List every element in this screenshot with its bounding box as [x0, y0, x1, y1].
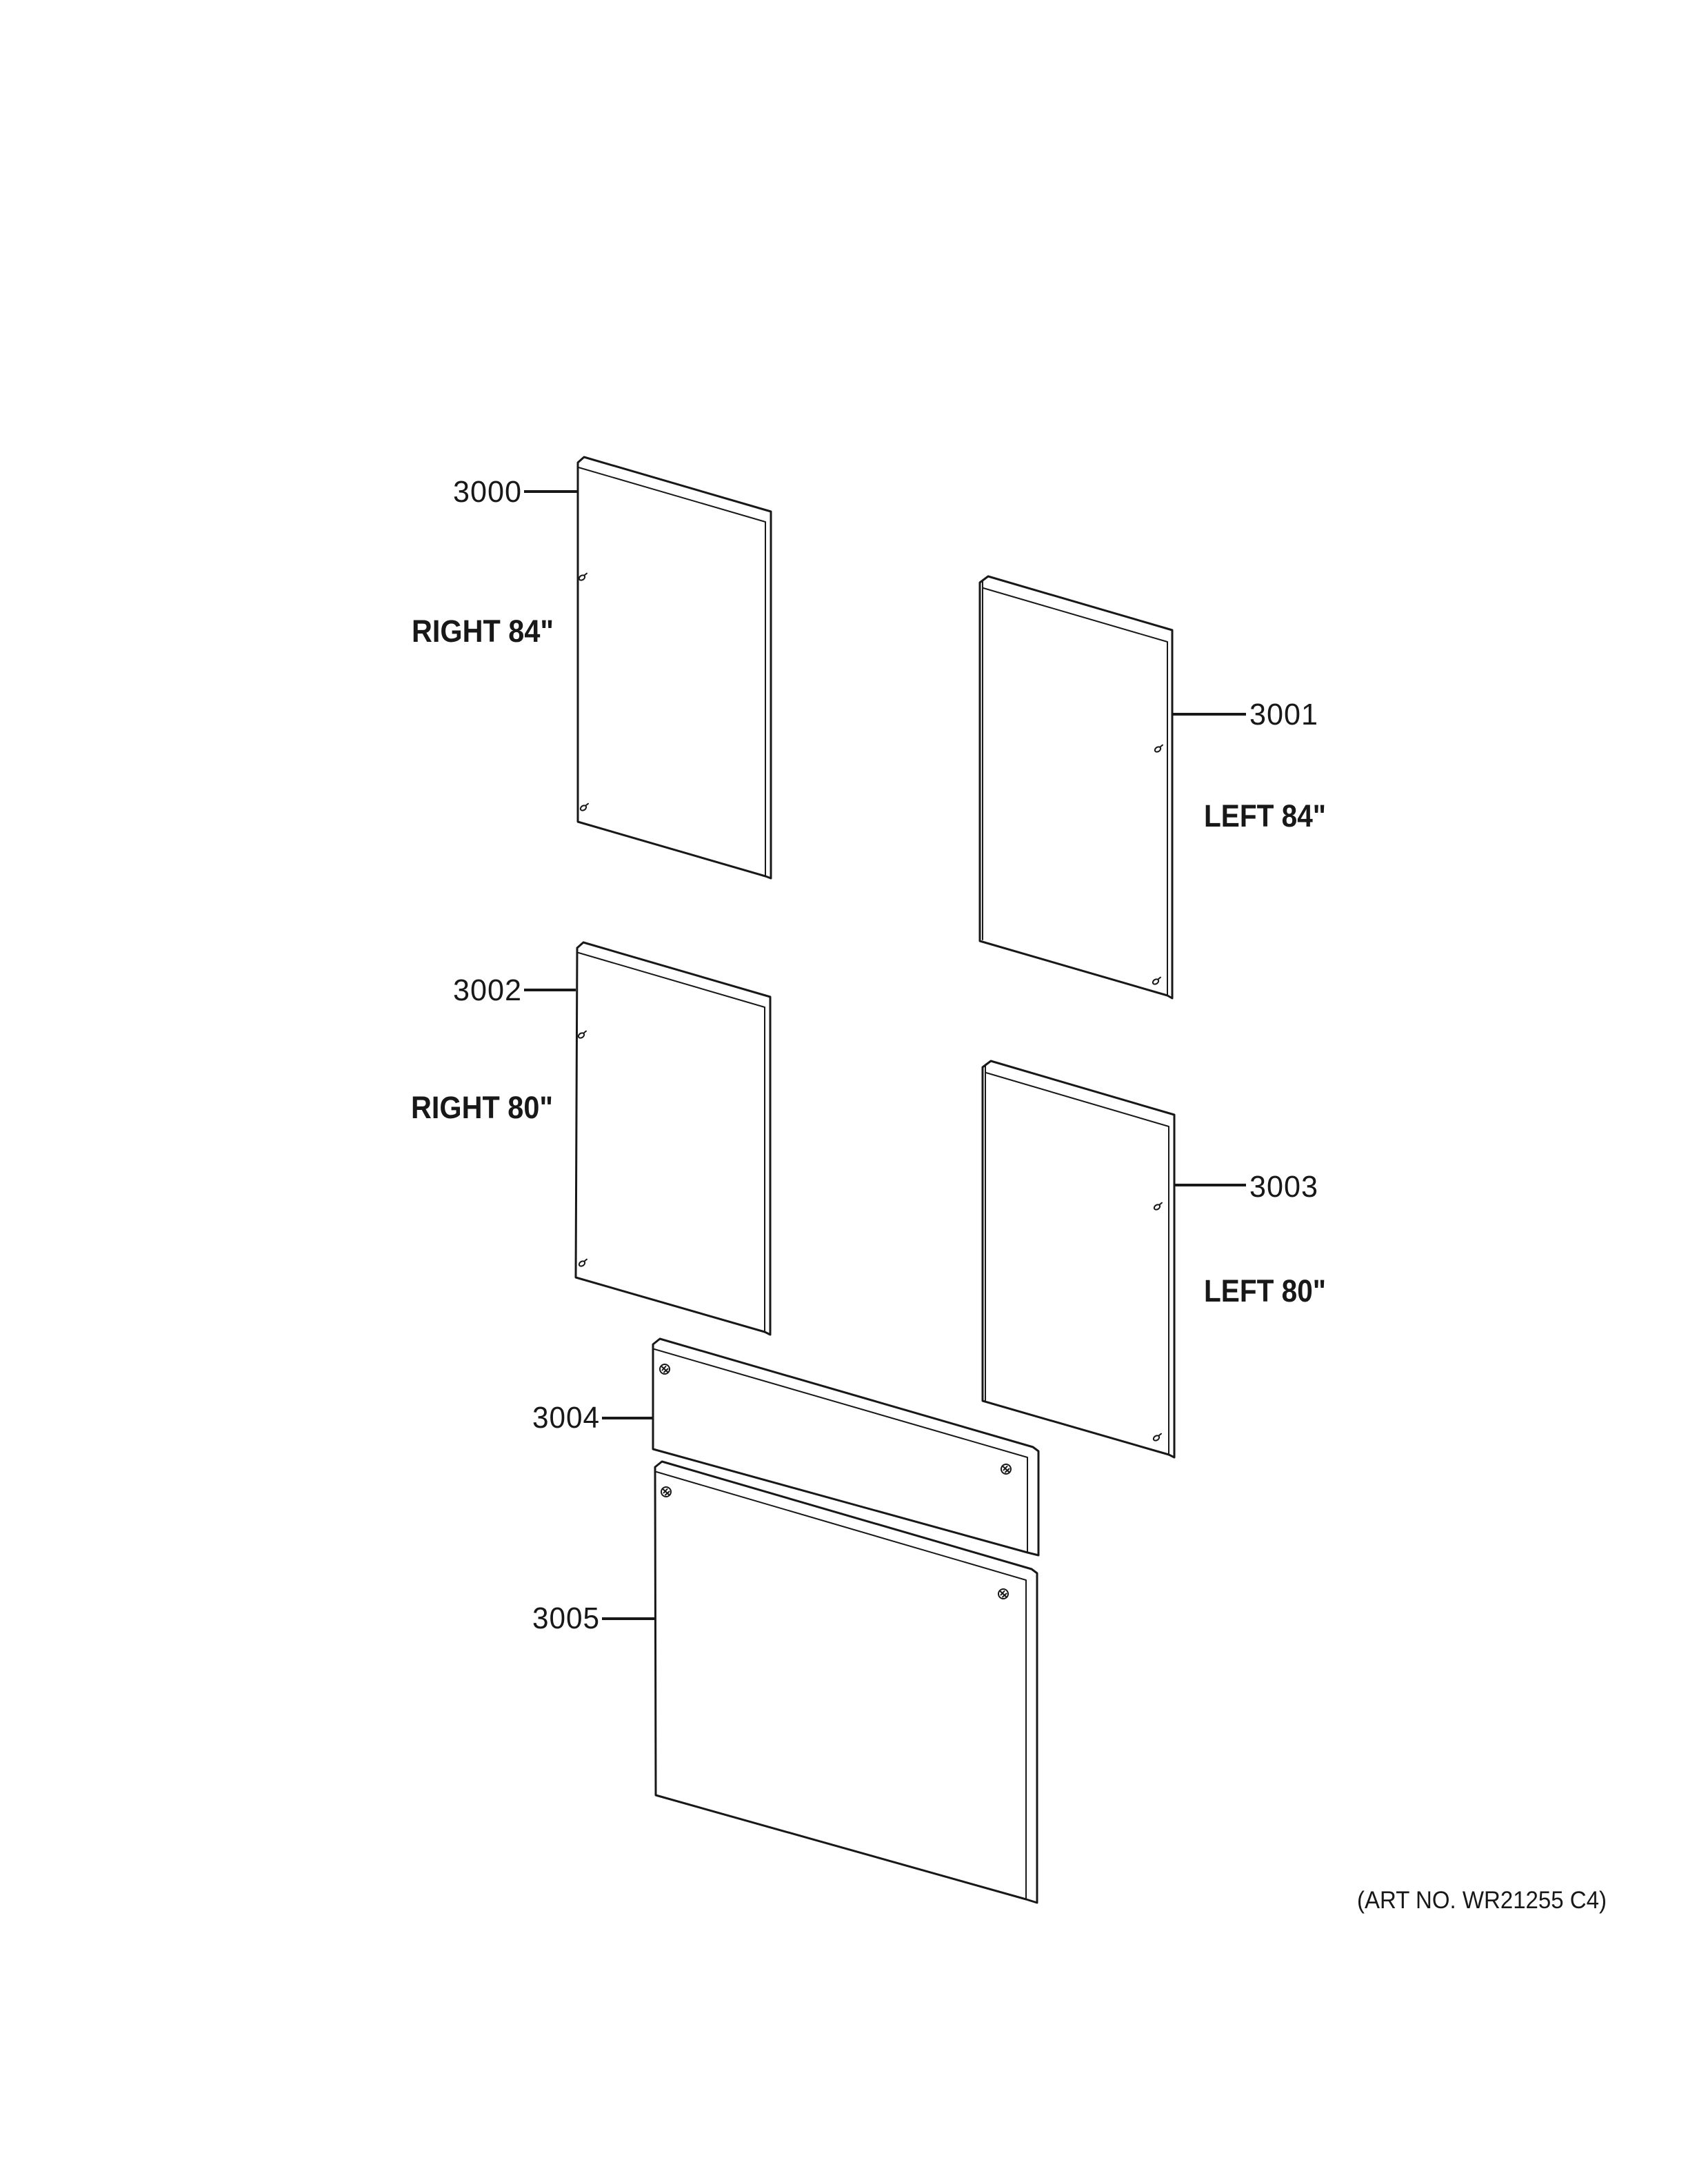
panel-3001: [980, 576, 1172, 998]
panel-3000-outline: [578, 457, 771, 878]
panel-3003-outline: [983, 1061, 1174, 1457]
panel-3001-outline: [980, 576, 1172, 998]
part-number-3002: 3002: [453, 973, 522, 1007]
panel-3002: [576, 942, 770, 1335]
part-number-3001: 3001: [1249, 698, 1318, 731]
size-label-3002: RIGHT 80": [411, 1090, 553, 1125]
part-number-3004: 3004: [532, 1401, 600, 1435]
part-number-3005: 3005: [532, 1601, 600, 1635]
art-number: (ART NO. WR21255 C4): [1357, 1887, 1607, 1914]
panel-3003: [983, 1061, 1174, 1457]
page-background: [0, 0, 1688, 2184]
part-number-3003: 3003: [1249, 1170, 1318, 1204]
size-label-3003: LEFT 80": [1204, 1273, 1326, 1308]
panel-3002-outline: [576, 942, 770, 1335]
parts-diagram: 3000 RIGHT 84" 3001 LEFT 84" 3002 RIGHT …: [0, 0, 1688, 2184]
size-label-3000: RIGHT 84": [412, 614, 554, 649]
part-number-3000: 3000: [453, 475, 522, 509]
panel-3000: [578, 457, 771, 878]
size-label-3001: LEFT 84": [1204, 798, 1326, 833]
